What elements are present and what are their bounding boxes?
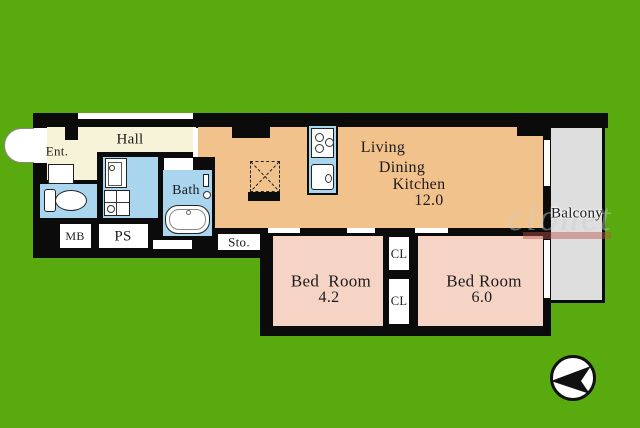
hall-ldk-door-gap bbox=[193, 128, 198, 157]
door-gap bbox=[415, 228, 448, 233]
stove-burner-icon bbox=[315, 133, 324, 142]
wall-notch-ldk-top bbox=[232, 127, 270, 138]
balcony-bottom-edge bbox=[551, 300, 605, 303]
window-gap-ldk bbox=[544, 140, 550, 186]
refrigerator-space-icon bbox=[250, 161, 280, 192]
stove-burner-icon bbox=[315, 144, 324, 153]
washer-pan-cross-v bbox=[116, 191, 117, 215]
shower-fixture-icon bbox=[203, 174, 209, 187]
label-pipe-space: PS bbox=[114, 230, 131, 245]
gap-above-hall bbox=[78, 113, 193, 119]
wall-stub-below-fridge bbox=[248, 192, 280, 201]
label-ldk-dining: Dining bbox=[379, 160, 425, 176]
door-gap bbox=[268, 228, 300, 233]
label-meter-box: MB bbox=[65, 230, 84, 242]
label-bedroom-large-area: 6.0 bbox=[472, 290, 493, 306]
label-ldk-area: 12.0 bbox=[414, 193, 443, 209]
window-gap-bedroom bbox=[544, 240, 550, 298]
wall-top-over-balcony bbox=[551, 113, 608, 128]
kitchen-faucet-icon bbox=[325, 174, 332, 183]
label-closet-bottom: CL bbox=[391, 295, 408, 308]
compass-icon bbox=[548, 354, 598, 404]
wall-notch-ldk-topright bbox=[517, 127, 543, 136]
label-ldk-living: Living bbox=[361, 140, 405, 156]
bath-faucet-icon bbox=[203, 191, 211, 199]
washer-drain-icon bbox=[107, 205, 115, 213]
label-hall: Hall bbox=[116, 133, 143, 148]
vanity-knob-icon bbox=[109, 165, 115, 171]
label-bath: Bath bbox=[172, 184, 200, 198]
stove-burner-icon bbox=[325, 138, 334, 147]
bath-door-gap bbox=[164, 158, 193, 170]
label-entrance: Ent. bbox=[46, 145, 69, 158]
door-gap bbox=[347, 228, 375, 233]
entrance-door-swing-icon bbox=[4, 128, 34, 163]
watermark-bar bbox=[523, 232, 611, 239]
toilet-bowl-icon bbox=[55, 190, 87, 211]
small-wall-opening bbox=[153, 240, 192, 249]
label-bedroom-small: Bed Room bbox=[291, 273, 371, 290]
washer-pan-cross-h bbox=[105, 202, 129, 203]
label-ldk-kitchen: Kitchen bbox=[393, 177, 446, 193]
label-bedroom-small-area: 4.2 bbox=[319, 290, 340, 306]
label-closet-top: CL bbox=[391, 248, 408, 261]
bathtub-faucet-dot bbox=[186, 210, 191, 215]
label-balcony: Balcony bbox=[551, 207, 603, 222]
label-bedroom-large: Bed Room bbox=[446, 273, 522, 290]
shoe-cabinet bbox=[48, 164, 74, 184]
wall-stub-ent-hall bbox=[65, 119, 78, 140]
floor-plan: clonet Ent. Hall Bath Living Dining Kitc… bbox=[0, 0, 640, 428]
label-storage: Sto. bbox=[228, 236, 250, 249]
